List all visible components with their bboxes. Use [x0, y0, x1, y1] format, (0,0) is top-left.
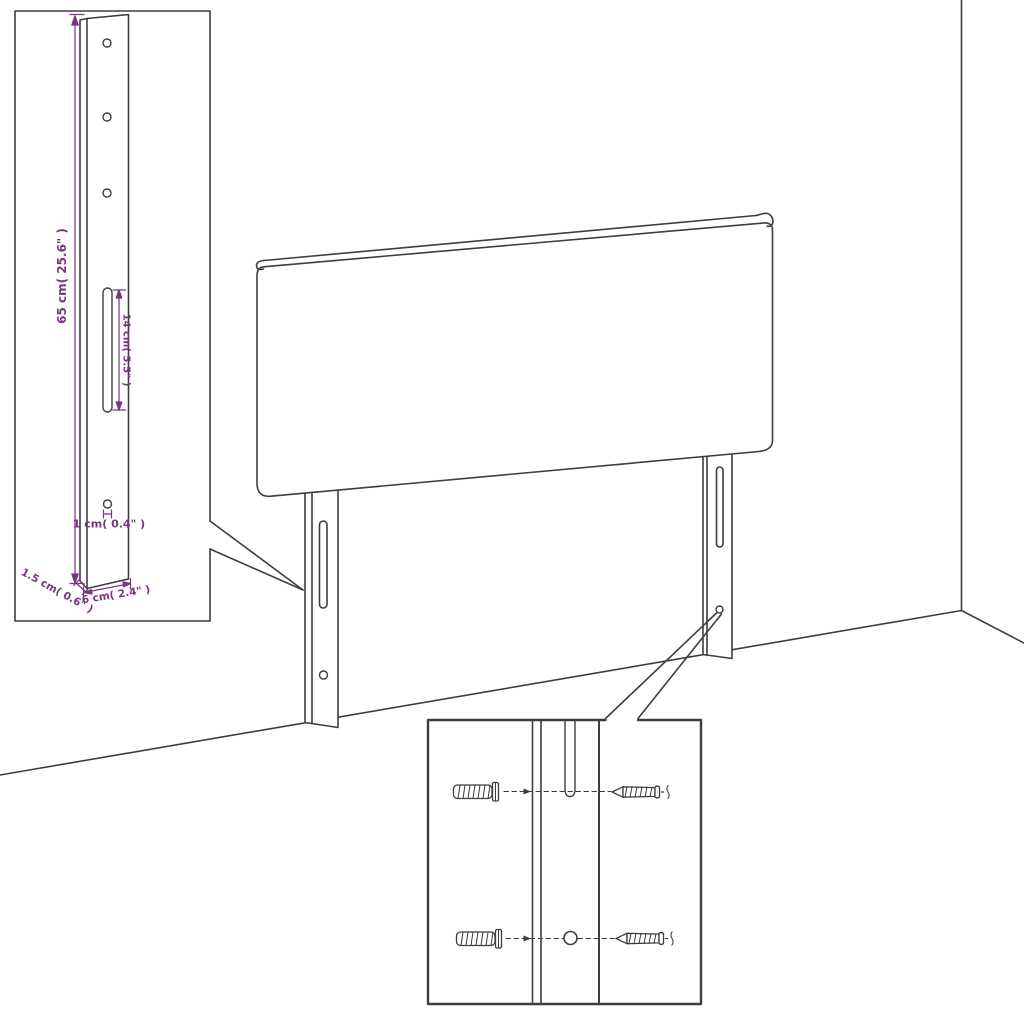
dash-arrow-top — [524, 789, 532, 795]
left-leg-hole — [320, 671, 328, 679]
screw-bottom — [616, 932, 673, 945]
wall-plug-bottom — [457, 930, 502, 949]
right-leg — [703, 452, 732, 659]
floor-line-left — [0, 611, 962, 776]
diagram-canvas: 65 cm( 25.6" ) 14 cm( 5.5" ) 1 cm( 0.4" … — [0, 0, 1024, 1024]
dash-arrow-bottom — [524, 936, 532, 942]
dimension-label-leg-height: 65 cm( 25.6" ) — [55, 228, 69, 324]
right-leg-slot — [717, 467, 724, 547]
leg-detail-drawing — [80, 15, 129, 589]
detail-leg-hole — [564, 932, 577, 945]
headboard-panel — [257, 213, 773, 496]
inset-callout-lines — [210, 521, 303, 590]
left-leg — [305, 487, 338, 728]
screw-top — [612, 786, 669, 799]
right-leg-hole — [716, 606, 723, 613]
detail-leg-slot — [565, 721, 575, 797]
wall-plug-top — [454, 783, 499, 802]
headboard-assembly-diagram — [0, 0, 1024, 1024]
hardware-callout-right — [638, 614, 722, 719]
dimension-label-slot-length: 14 cm( 5.5" ) — [121, 314, 132, 387]
hardware-detail-drawing — [454, 721, 674, 1003]
hardware-callout-left — [606, 613, 717, 719]
dimension-label-hole-diameter: 1 cm( 0.4" ) — [73, 518, 145, 531]
headboard-front-face — [257, 223, 773, 497]
left-leg-slot — [320, 521, 328, 608]
floor-line-right — [962, 611, 1024, 644]
